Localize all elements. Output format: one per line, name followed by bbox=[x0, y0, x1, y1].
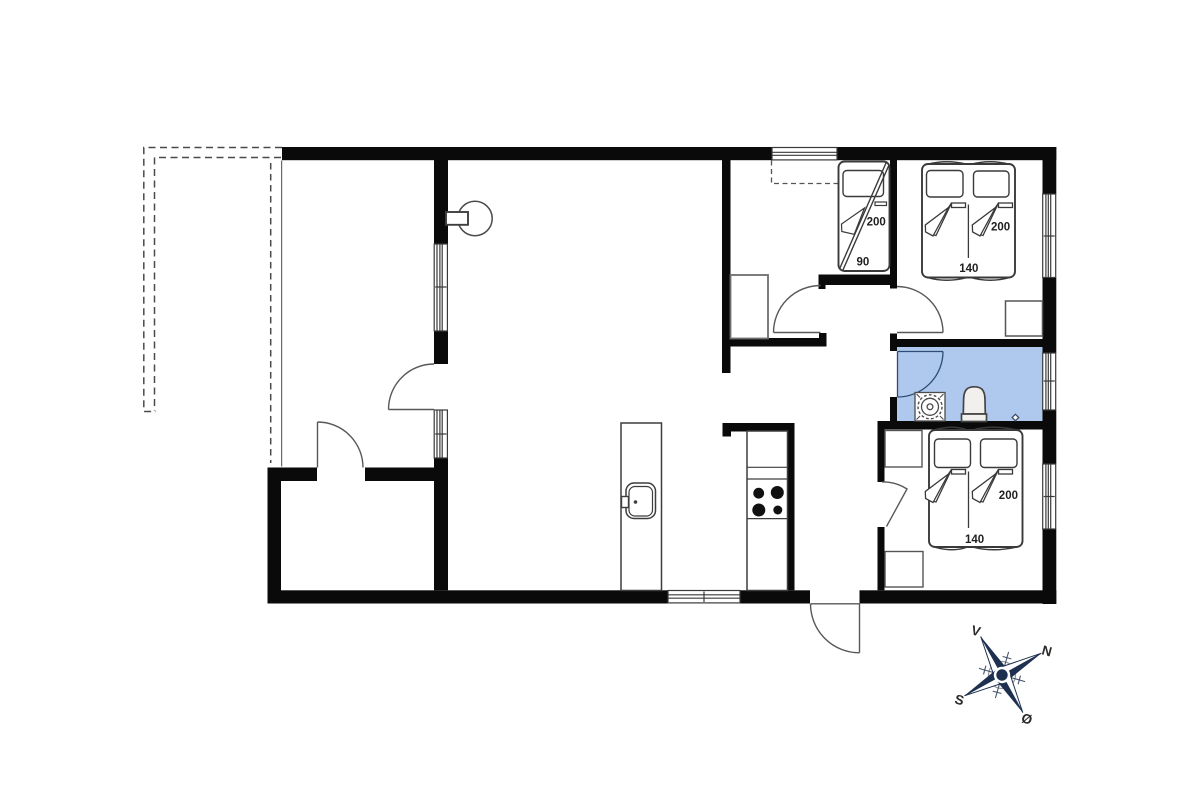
svg-text:90: 90 bbox=[857, 256, 870, 268]
svg-text:200: 200 bbox=[867, 217, 886, 229]
svg-text:200: 200 bbox=[999, 490, 1018, 502]
svg-text:140: 140 bbox=[959, 263, 978, 275]
svg-text:140: 140 bbox=[965, 534, 984, 546]
svg-text:200: 200 bbox=[991, 222, 1010, 234]
